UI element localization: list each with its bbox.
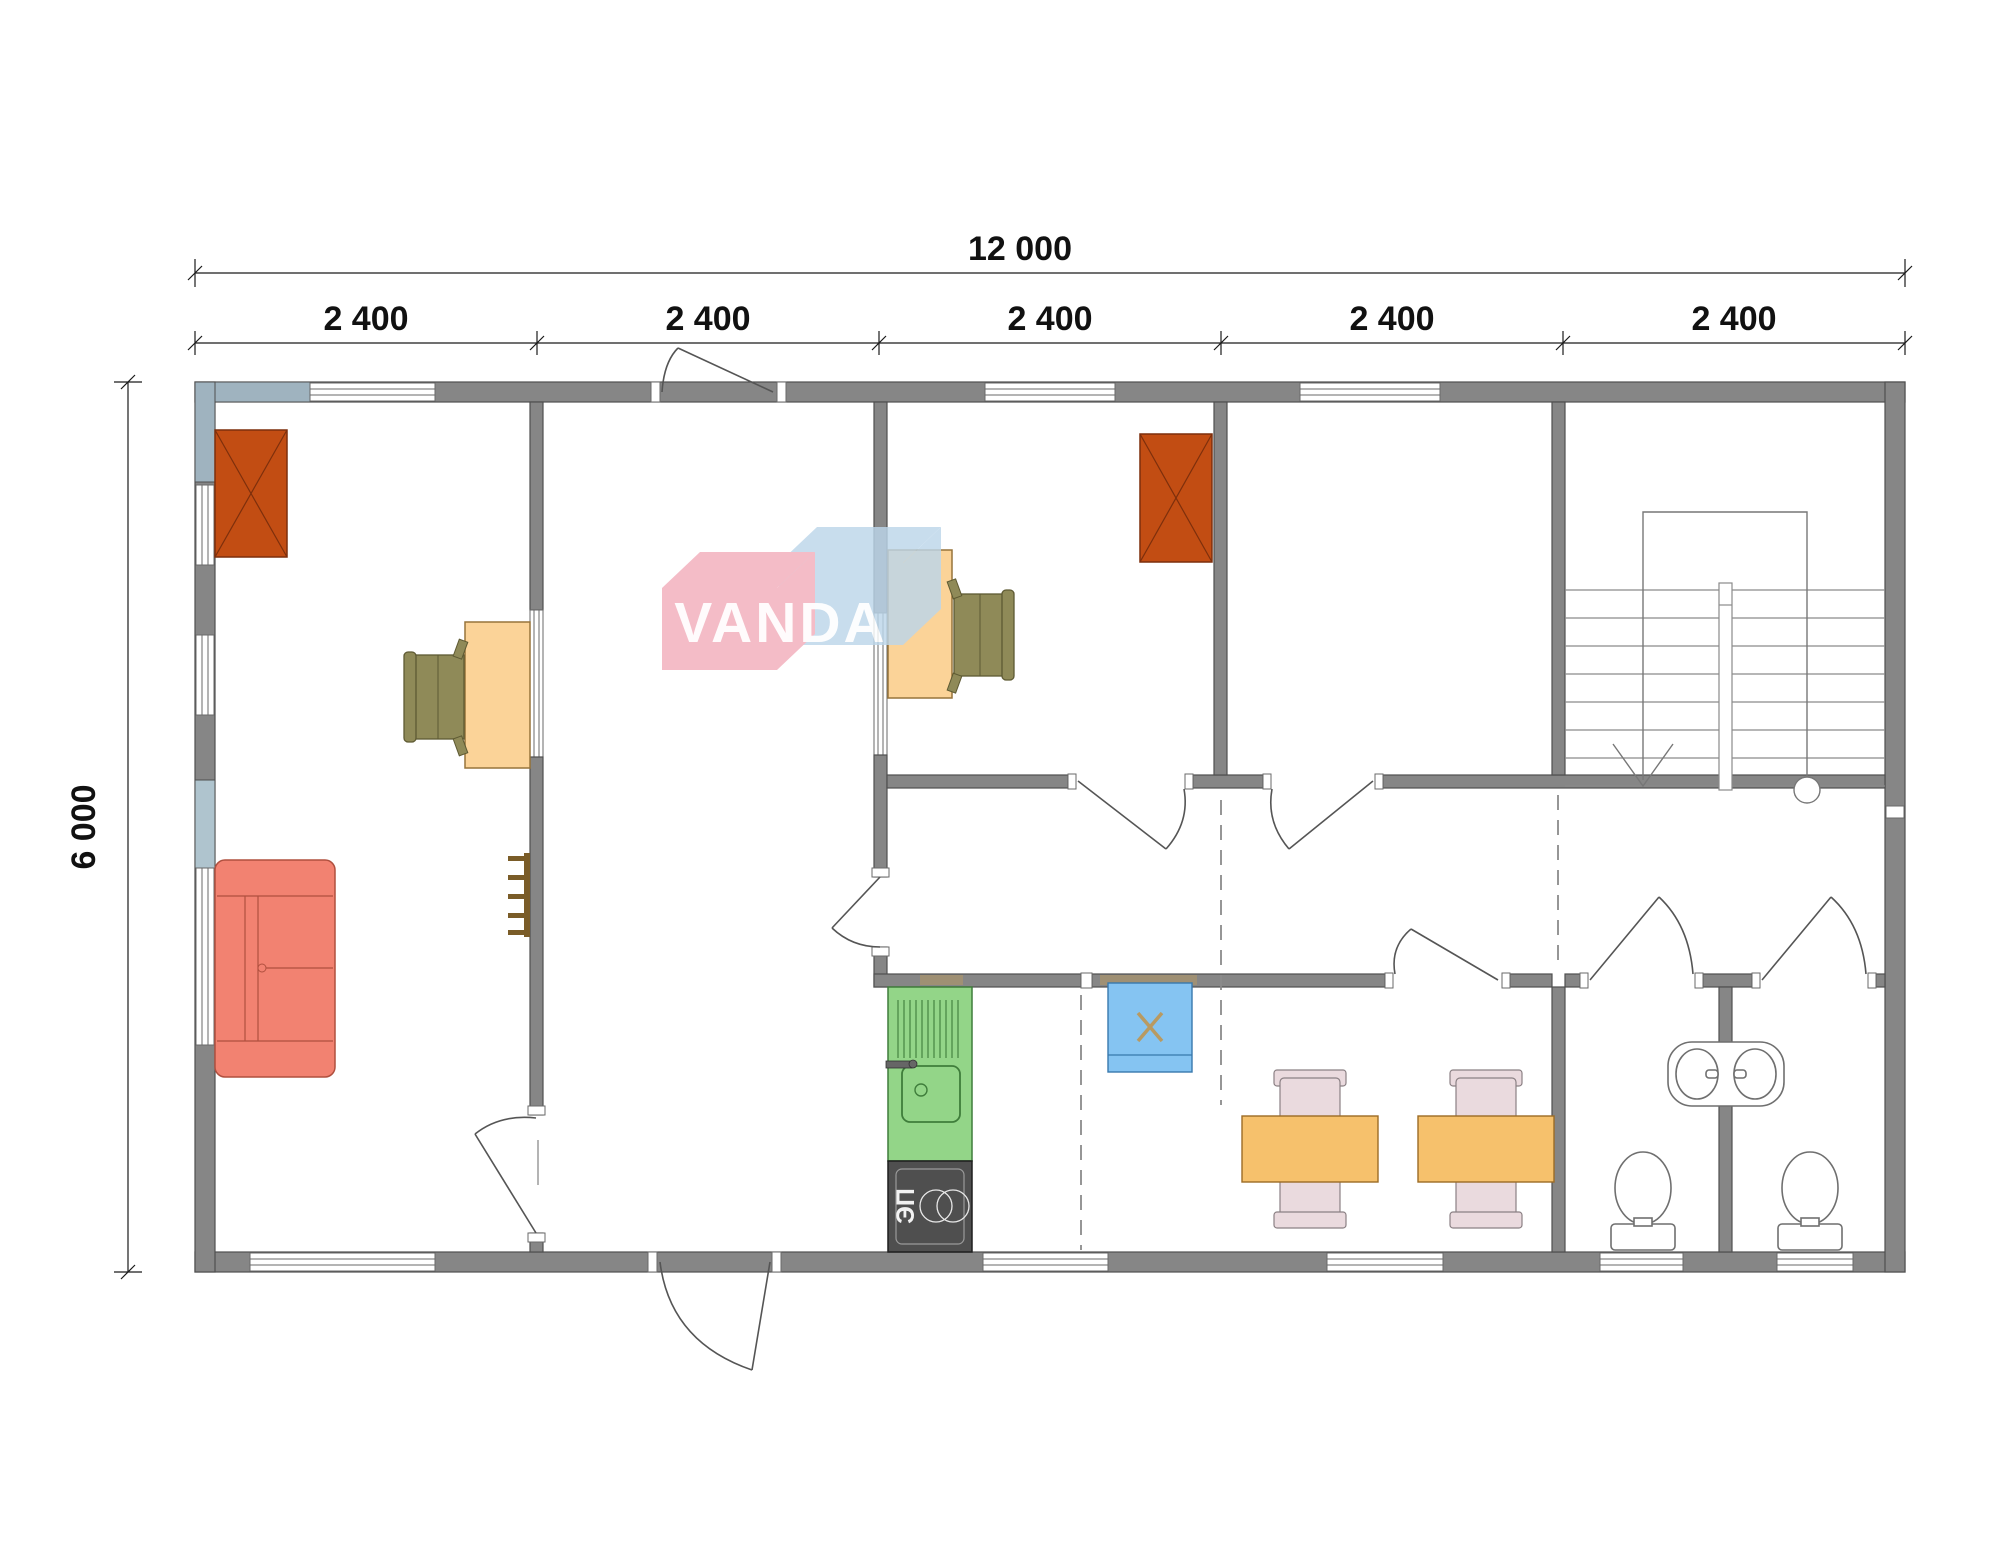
faucet-icon [886, 1060, 917, 1068]
kitchen-counter [886, 987, 972, 1161]
chimney-office [1140, 434, 1212, 562]
window-bottom-living [250, 1253, 435, 1271]
chair-back [1274, 1212, 1346, 1228]
bay-label-1: 2 400 [323, 300, 408, 338]
bay-label-3: 2 400 [1007, 300, 1092, 338]
wall-right [1885, 382, 1905, 1272]
dining-table [1242, 1116, 1378, 1182]
double-washbasin [1668, 1042, 1784, 1106]
dining-set-2 [1418, 1070, 1554, 1228]
window-bottom-wc1 [1600, 1253, 1683, 1271]
window-left-1 [196, 485, 214, 565]
office2-door [1271, 781, 1373, 849]
office1-door [1078, 781, 1185, 849]
kitchen-zone: ЭП [886, 983, 1192, 1252]
chair-seat [1280, 1078, 1340, 1120]
corridor-wall-stub [1193, 775, 1263, 788]
bay-label-4: 2 400 [1349, 300, 1434, 338]
wall-p-stair [1552, 402, 1565, 775]
wc2-door [1762, 897, 1866, 980]
wc-wall-2 [1703, 974, 1752, 987]
dimension-bays: 2 400 2 400 2 400 2 400 2 400 [188, 300, 1912, 355]
desk-living [465, 622, 530, 768]
total-width-label: 12 000 [968, 230, 1072, 268]
sink-bowl [902, 1066, 960, 1122]
left-wall-pier [195, 780, 215, 868]
wall-f [1214, 402, 1227, 775]
module-boundaries [538, 795, 1558, 1250]
wc-stall-divider [1719, 987, 1732, 1252]
staircase [1565, 512, 1885, 803]
dining-table [1418, 1116, 1554, 1182]
window-bottom-kitchen [983, 1253, 1108, 1271]
brand-text: VANDA [674, 591, 887, 655]
dining-room [1242, 1070, 1554, 1228]
dining-set-1 [1242, 1070, 1378, 1228]
stove-label: ЭП [892, 1188, 920, 1224]
window-left-3 [196, 868, 214, 1045]
electric-stove: ЭП [888, 1161, 972, 1252]
toilet-right [1778, 1152, 1842, 1250]
wall-c-mid [874, 755, 887, 877]
wall-tint-hood [920, 975, 963, 985]
kitchen-wall-3 [1510, 974, 1552, 987]
total-height-label: 6 000 [65, 784, 103, 869]
chair-back [1450, 1212, 1522, 1228]
office-chair-living [404, 639, 468, 756]
wc1-door [1590, 897, 1693, 980]
wc-wall-3 [1876, 974, 1885, 987]
exterior-walls [195, 382, 1905, 1272]
kitchen-wall-1 [874, 974, 1081, 987]
window-top-office2 [1300, 383, 1440, 401]
wall-a-window [530, 610, 543, 757]
chair-seat [1456, 1078, 1516, 1120]
entry-door-bottom [660, 1262, 770, 1370]
wall-a-top [530, 402, 543, 610]
floor-plan-drawing: 12 000 2 400 2 400 2 400 2 400 2 400 6 0… [0, 0, 2000, 1563]
stair-start-circle [1794, 777, 1820, 803]
window-top-living [310, 383, 435, 401]
wall-a-mid [530, 757, 543, 1115]
dimension-total-width: 12 000 [188, 230, 1912, 287]
sofa [215, 860, 335, 1077]
chimney-living [215, 430, 287, 557]
wc-wall-1 [1565, 974, 1580, 987]
window-top-office1 [985, 383, 1115, 401]
living-room [215, 430, 530, 1077]
floor-plan-page: 12 000 2 400 2 400 2 400 2 400 2 400 6 0… [0, 0, 2000, 1563]
corner-pier-left [195, 382, 215, 482]
stair-stringer [1719, 583, 1732, 790]
bay-label-2: 2 400 [665, 300, 750, 338]
windows [196, 383, 1853, 1271]
corridor-wall-left [887, 775, 1068, 788]
window-left-2 [196, 635, 214, 715]
dining-door [1394, 929, 1498, 980]
window-bottom-wc2 [1777, 1253, 1853, 1271]
bay-label-5: 2 400 [1691, 300, 1776, 338]
dimension-total-height: 6 000 [65, 375, 142, 1279]
window-bottom-dining [1327, 1253, 1443, 1271]
living-room-door [475, 1117, 536, 1233]
fridge [1108, 983, 1192, 1072]
wall-rack [508, 853, 530, 937]
office-chair-office1 [947, 579, 1014, 693]
toilet-left [1611, 1152, 1675, 1250]
hall-corridor-door [832, 877, 880, 947]
